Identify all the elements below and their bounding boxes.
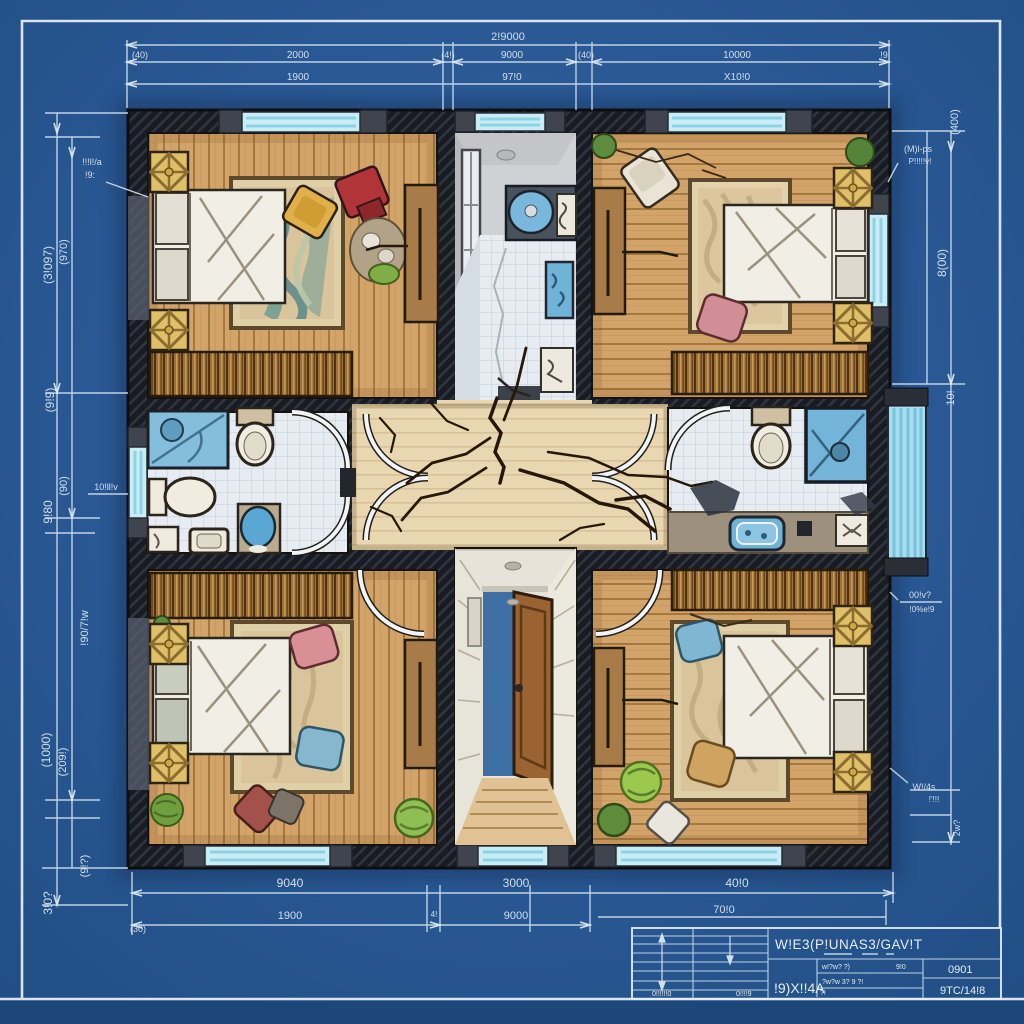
svg-text:(40): (40) xyxy=(132,50,148,60)
svg-text:4!: 4! xyxy=(431,910,438,919)
svg-text:2!9000: 2!9000 xyxy=(491,31,525,43)
svg-text:97!0: 97!0 xyxy=(502,72,522,83)
svg-text:10!ll!v: 10!ll!v xyxy=(94,482,118,492)
svg-text:(4!): (4!) xyxy=(441,50,455,60)
svg-text:9TC/14!8: 9TC/14!8 xyxy=(940,985,985,997)
svg-text:10000: 10000 xyxy=(723,50,751,61)
svg-text:(M)l-ps: (M)l-ps xyxy=(904,144,932,154)
svg-text:1900: 1900 xyxy=(287,72,310,83)
svg-text:!90/7!w: !90/7!w xyxy=(79,610,91,646)
svg-text:0!!!!9: 0!!!!9 xyxy=(736,991,752,998)
svg-text:(9!?): (9!?) xyxy=(79,855,91,878)
svg-text:1900: 1900 xyxy=(278,910,302,922)
svg-text:(90): (90) xyxy=(58,476,70,496)
svg-text:9040: 9040 xyxy=(277,876,304,890)
svg-text:(400): (400) xyxy=(949,109,961,135)
svg-text:9!0: 9!0 xyxy=(896,964,906,971)
svg-text:W!E3(P!UNAS3/GAV!T: W!E3(P!UNAS3/GAV!T xyxy=(775,937,923,952)
svg-text:8(00): 8(00) xyxy=(935,249,949,277)
svg-text:(40): (40) xyxy=(578,50,594,60)
svg-text:3000: 3000 xyxy=(503,876,530,890)
svg-text:9!80: 9!80 xyxy=(41,500,55,524)
svg-text:2000: 2000 xyxy=(287,50,310,61)
svg-text:!!!l!/a: !!!l!/a xyxy=(82,157,102,167)
svg-text:!9)X!!4A: !9)X!!4A xyxy=(774,980,825,996)
svg-text:P!!!!!v!: P!!!!!v! xyxy=(909,157,932,166)
svg-text:10!: 10! xyxy=(945,390,957,405)
svg-text:!'!!!: !'!!! xyxy=(929,795,939,804)
svg-text:(209!): (209!) xyxy=(57,748,69,777)
svg-text:(3!097): (3!097) xyxy=(41,246,55,284)
svg-text:!9: !9 xyxy=(880,50,888,60)
svg-text:(30): (30) xyxy=(130,924,146,934)
svg-text:70!0: 70!0 xyxy=(713,904,734,916)
svg-text:(970): (970) xyxy=(58,239,70,265)
svg-text:!0%e!9: !0%e!9 xyxy=(910,605,935,614)
svg-text:2w?: 2w? xyxy=(952,820,962,837)
svg-text:?w?w 3? 9 ?!: ?w?w 3? 9 ?! xyxy=(822,979,863,986)
svg-text:3!0?: 3!0? xyxy=(41,891,55,915)
svg-text:0!!!!!!0: 0!!!!!!0 xyxy=(652,991,672,998)
svg-text:9000: 9000 xyxy=(504,910,528,922)
svg-text:w!?w? ?): w!?w? ?) xyxy=(821,964,850,971)
svg-text:X10!0: X10!0 xyxy=(724,72,751,83)
svg-text:9000: 9000 xyxy=(501,50,524,61)
svg-text:(9!9): (9!9) xyxy=(43,388,57,413)
svg-text:(1000): (1000) xyxy=(39,733,53,768)
svg-text:!9:: !9: xyxy=(85,170,95,180)
svg-text:W!/4s: W!/4s xyxy=(912,782,936,792)
svg-text:0901: 0901 xyxy=(948,964,972,976)
svg-text:40!0: 40!0 xyxy=(725,876,749,890)
svg-text:00!v?: 00!v? xyxy=(909,590,931,600)
